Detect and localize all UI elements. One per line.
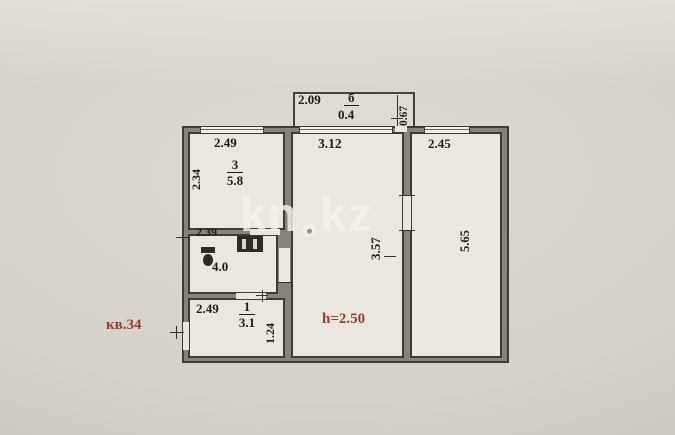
balcony-depth-label: 0.67 [399,94,411,126]
living-width-label: 3.12 [318,137,342,151]
floorplan-photo: 2.09 б 0.4 0.67 2.49 2.34 3 5.8 2.39 4.0… [0,0,675,435]
room3-area-label: 5.8 [218,174,252,187]
room3-number-label: 3 [227,158,244,173]
room1-width-label: 2.49 [196,302,219,315]
watermark: kn kz [240,192,373,240]
dim-tick [399,195,415,196]
apartment-number-label: кв.34 [106,318,142,333]
room3-height-label: 2.34 [190,150,202,190]
door-bedroom [403,196,411,230]
window-room3 [200,126,264,134]
room3-width-label: 2.49 [214,136,237,149]
room1-number-area: 1 3.1 [230,300,264,329]
door-hall-bathroom [279,248,290,282]
balcony-width-label: 2.09 [298,93,321,106]
room1-area-label: 3.1 [230,316,264,329]
dim-tick [176,237,188,238]
ceiling-height-label: h=2.50 [322,312,365,327]
bedroom [410,132,502,358]
dim-tick [278,282,292,283]
bathroom-area-label: 4.0 [212,260,228,273]
balcony-area-label: 0.4 [338,108,354,121]
toilet-tank [201,247,215,253]
door-entrance [183,322,189,350]
dim-tick [399,230,415,231]
bedroom-depth-label: 5.65 [459,198,472,252]
dim-tick [170,332,184,333]
door-balcony [395,126,407,132]
bathroom-width-label: 2.39 [196,226,217,238]
dim-tick [176,326,177,339]
bedroom-width-label: 2.45 [428,137,451,150]
room1-number-label: 1 [239,300,256,315]
balcony-number-label: б [344,91,359,106]
window-balcony [299,126,393,134]
room3-number-area: 3 5.8 [218,158,252,187]
watermark-right: kz [320,192,373,240]
room1-depth-label: 1.24 [264,306,276,344]
watermark-left: kn [240,192,298,240]
window-bedroom [424,126,470,134]
watermark-dot-icon [303,224,316,237]
dim-tick [384,256,396,257]
